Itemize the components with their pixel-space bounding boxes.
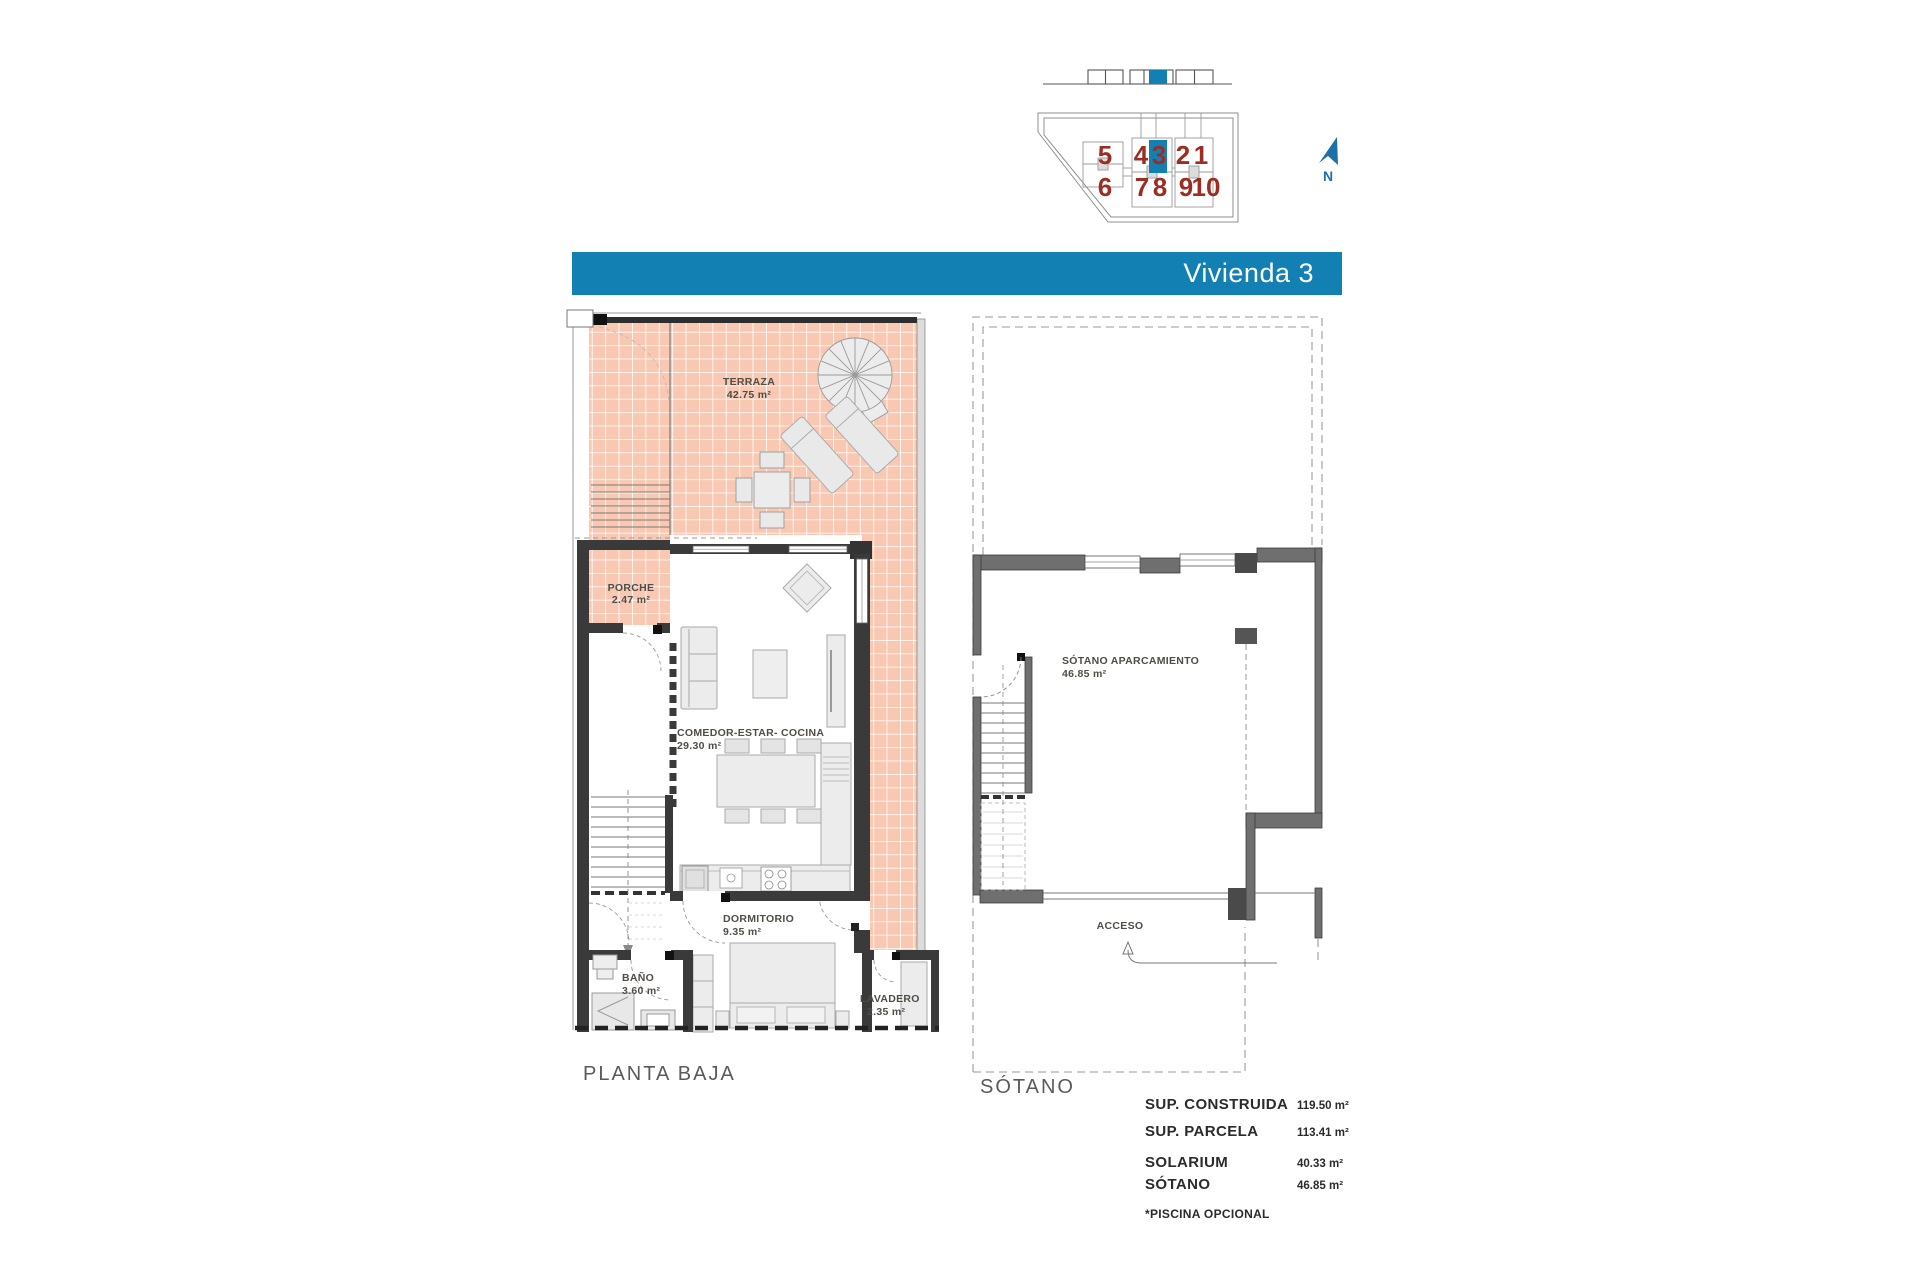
porche-label: PORCHE bbox=[608, 582, 655, 594]
acceso-arrow bbox=[1123, 942, 1277, 963]
gate-pillar bbox=[567, 310, 593, 327]
door-hinge bbox=[721, 893, 730, 902]
lavadero-west-wall bbox=[862, 950, 872, 1032]
toilet bbox=[593, 955, 617, 979]
summary-row: SUP. PARCELA113.41 m² bbox=[1145, 1123, 1349, 1141]
dormitorio-label: DORMITORIO bbox=[723, 913, 794, 925]
sotano-plan: SÓTANO APARCAMIENTO 46.85 m² ACCESO SÓTA… bbox=[965, 305, 1350, 1105]
garage-door bbox=[1043, 893, 1228, 899]
unit-number-6: 6 bbox=[1098, 172, 1112, 202]
entry-door-hinge bbox=[653, 625, 662, 634]
shower bbox=[592, 993, 634, 1030]
comedor-label: COMEDOR-ESTAR- COCINA bbox=[677, 727, 824, 739]
bano-label: BAÑO bbox=[622, 971, 654, 984]
interior-column bbox=[1235, 628, 1257, 644]
east-wall-lower bbox=[854, 930, 870, 953]
summary-value: 40.33 m² bbox=[1297, 1158, 1343, 1170]
armchair bbox=[783, 564, 831, 612]
dormitorio-door-gap bbox=[683, 891, 725, 901]
basement-column bbox=[1235, 553, 1257, 573]
dormitorio-door-arc bbox=[683, 901, 725, 943]
summary-label: SOLARIUM bbox=[1145, 1154, 1297, 1171]
lavadero-area: 2.35 m² bbox=[867, 1006, 905, 1018]
summary-row: SUP. CONSTRUIDA119.50 m² bbox=[1145, 1096, 1349, 1114]
living-east-window bbox=[857, 559, 868, 623]
summary-value: 113.41 m² bbox=[1297, 1127, 1349, 1139]
aparcamiento-label: SÓTANO APARCAMIENTO bbox=[1062, 654, 1199, 667]
dining-table bbox=[717, 739, 821, 823]
garage-pillar bbox=[1228, 888, 1246, 920]
lavadero-door-arc bbox=[874, 960, 896, 982]
elevation-strip bbox=[1043, 70, 1232, 84]
stove bbox=[761, 867, 791, 891]
elevation-highlighted-unit bbox=[1149, 70, 1167, 84]
bano-area: 3.60 m² bbox=[622, 985, 660, 997]
pool-note: *PISCINA OPCIONAL bbox=[1145, 1207, 1270, 1221]
terrace-north-wall bbox=[581, 317, 917, 323]
interior-stairs bbox=[589, 790, 673, 957]
terraza-label: TERRAZA bbox=[723, 376, 775, 388]
lavadero-north-wall bbox=[862, 950, 939, 960]
lavadero-label: LAVADERO bbox=[860, 993, 920, 1005]
summary-label: SÓTANO bbox=[1145, 1176, 1297, 1193]
fridge bbox=[682, 866, 708, 892]
floor-plan-page: Vivienda 3 bbox=[0, 0, 1920, 1280]
kitchen-sink bbox=[720, 868, 742, 888]
comedor-area: 29.30 m² bbox=[677, 740, 722, 752]
summary-value: 119.50 m² bbox=[1297, 1100, 1349, 1112]
acceso-label: ACCESO bbox=[1097, 920, 1144, 932]
bed bbox=[716, 943, 849, 1028]
summary-label: SUP. PARCELA bbox=[1145, 1123, 1297, 1140]
house-west-wall bbox=[577, 540, 589, 1032]
dormitorio-area: 9.35 m² bbox=[723, 926, 761, 938]
north-label: N bbox=[1323, 168, 1333, 184]
summary-row: SÓTANO46.85 m² bbox=[1145, 1176, 1343, 1194]
gate-leaf bbox=[593, 314, 607, 325]
shelf-strip bbox=[670, 643, 677, 807]
door-hinge bbox=[665, 951, 674, 960]
aparcamiento-area: 46.85 m² bbox=[1062, 668, 1107, 680]
door-hinge bbox=[851, 923, 859, 931]
coffee-table bbox=[753, 650, 787, 698]
unit-number-8: 8 bbox=[1153, 172, 1167, 202]
door-hinge bbox=[892, 952, 900, 960]
planta-baja-title: PLANTA BAJA bbox=[583, 1063, 736, 1085]
lavadero-east-wall bbox=[931, 955, 939, 1032]
unit-number-10: 10 bbox=[1192, 172, 1221, 202]
north-arrow-icon: N bbox=[1319, 137, 1338, 184]
summary-value: 46.85 m² bbox=[1297, 1180, 1343, 1192]
planta-baja-plan: TERRAZA 42.75 m² PORCHE 2.47 m² bbox=[565, 305, 950, 1105]
unit-number-3: 3 bbox=[1152, 140, 1166, 170]
bano-east-wall bbox=[683, 950, 693, 1032]
porche-south-wall-a bbox=[589, 623, 623, 633]
dwelling-title: Vivienda 3 bbox=[1183, 258, 1314, 288]
sofa bbox=[681, 627, 717, 709]
site-key-plan: 5 4 3 2 1 6 7 8 9 10 N bbox=[1020, 40, 1360, 260]
tv-unit bbox=[827, 635, 845, 727]
unit-number-1: 1 bbox=[1194, 140, 1208, 170]
unit-number-2: 2 bbox=[1176, 140, 1190, 170]
sotano-title: SÓTANO bbox=[980, 1075, 1075, 1098]
basement-stairs bbox=[981, 653, 1032, 890]
summary-label: SUP. CONSTRUIDA bbox=[1145, 1096, 1297, 1113]
right-boundary-wall bbox=[917, 319, 925, 953]
wardrobe bbox=[693, 955, 713, 1032]
unit-number-5: 5 bbox=[1098, 140, 1112, 170]
unit-number-7: 7 bbox=[1135, 172, 1149, 202]
porche-north-wall bbox=[589, 540, 670, 550]
terraza-area: 42.75 m² bbox=[727, 389, 772, 401]
summary-row: SOLARIUM40.33 m² bbox=[1145, 1154, 1343, 1172]
entry-door-arc bbox=[623, 633, 661, 671]
unit-number-4: 4 bbox=[1134, 140, 1149, 170]
porche-area: 2.47 m² bbox=[612, 594, 650, 606]
